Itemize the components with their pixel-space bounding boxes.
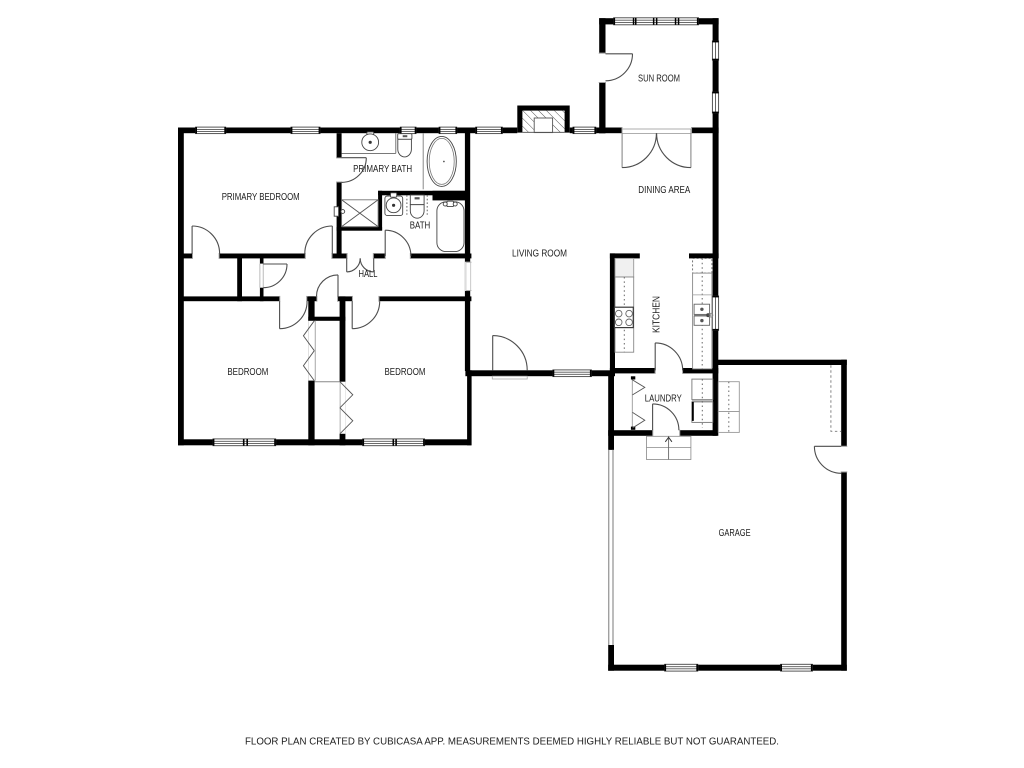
- svg-text:SUN ROOM: SUN ROOM: [638, 74, 680, 85]
- svg-text:BEDROOM: BEDROOM: [227, 367, 268, 378]
- svg-text:GARAGE: GARAGE: [719, 528, 751, 539]
- svg-text:LIVING ROOM: LIVING ROOM: [512, 248, 567, 259]
- svg-text:KITCHEN: KITCHEN: [651, 296, 662, 333]
- svg-text:LAUNDRY: LAUNDRY: [645, 393, 682, 404]
- svg-text:HALL: HALL: [359, 269, 378, 280]
- svg-text:PRIMARY BATH: PRIMARY BATH: [353, 164, 412, 175]
- svg-text:BEDROOM: BEDROOM: [385, 367, 426, 378]
- svg-text:DINING AREA: DINING AREA: [638, 185, 690, 196]
- svg-text:BATH: BATH: [410, 220, 431, 231]
- svg-text:FLOOR PLAN CREATED BY CUBICASA: FLOOR PLAN CREATED BY CUBICASA APP. MEAS…: [245, 737, 779, 748]
- svg-text:PRIMARY BEDROOM: PRIMARY BEDROOM: [222, 192, 300, 203]
